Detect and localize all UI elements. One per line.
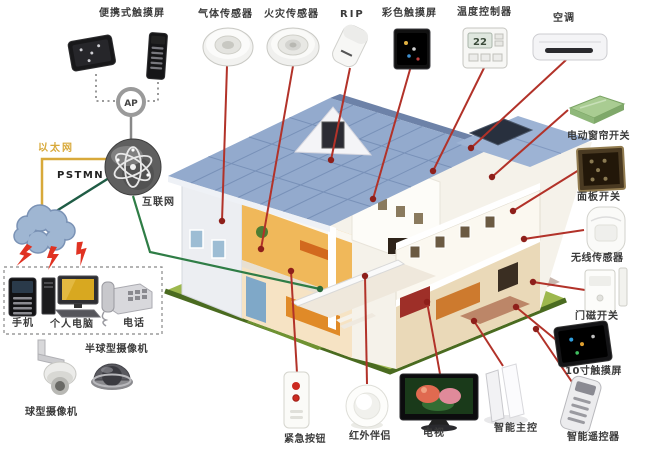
label-temperature-controller: 温度控制器 <box>457 7 512 18</box>
label-tv: 电视 <box>423 428 445 439</box>
label-internet: 互联网 <box>142 197 175 208</box>
label-pstn: PSTMN <box>57 170 104 181</box>
smart-home-diagram: AP <box>0 0 648 460</box>
label-10inch-touchscreen: 10寸触摸屏 <box>565 366 622 377</box>
label-air-conditioner: 空调 <box>553 13 575 24</box>
label-personal-computer: 个人电脑 <box>50 319 94 330</box>
label-smart-main-control: 智能主控 <box>494 423 538 434</box>
label-portable-touchscreen: 便携式触摸屏 <box>99 8 165 19</box>
label-door-magnet: 门磁开关 <box>575 311 619 322</box>
label-panel-switch: 面板开关 <box>577 192 621 203</box>
label-emergency-button: 紧急按钮 <box>284 434 326 445</box>
label-mobile-phone: 手机 <box>12 318 34 329</box>
label-ball-camera: 球型摄像机 <box>25 407 78 418</box>
label-ir-companion: 红外伴侣 <box>349 431 391 442</box>
label-dome-camera: 半球型摄像机 <box>85 344 148 355</box>
label-color-touchscreen: 彩色触摸屏 <box>382 8 437 19</box>
label-smart-remote: 智能遥控器 <box>567 432 620 443</box>
label-fire-sensor: 火灾传感器 <box>264 9 319 20</box>
label-wireless-sensor: 无线传感器 <box>571 253 624 264</box>
label-curtain-switch: 电动窗帘开关 <box>567 131 630 142</box>
label-pir: RIP <box>340 9 365 20</box>
label-telephone: 电话 <box>123 318 145 329</box>
label-ethernet: 以太网 <box>38 143 74 154</box>
labels-layer: 便携式触摸屏 气体传感器 火灾传感器 RIP 彩色触摸屏 温度控制器 空调 电动… <box>0 0 648 460</box>
label-gas-sensor: 气体传感器 <box>198 9 253 20</box>
